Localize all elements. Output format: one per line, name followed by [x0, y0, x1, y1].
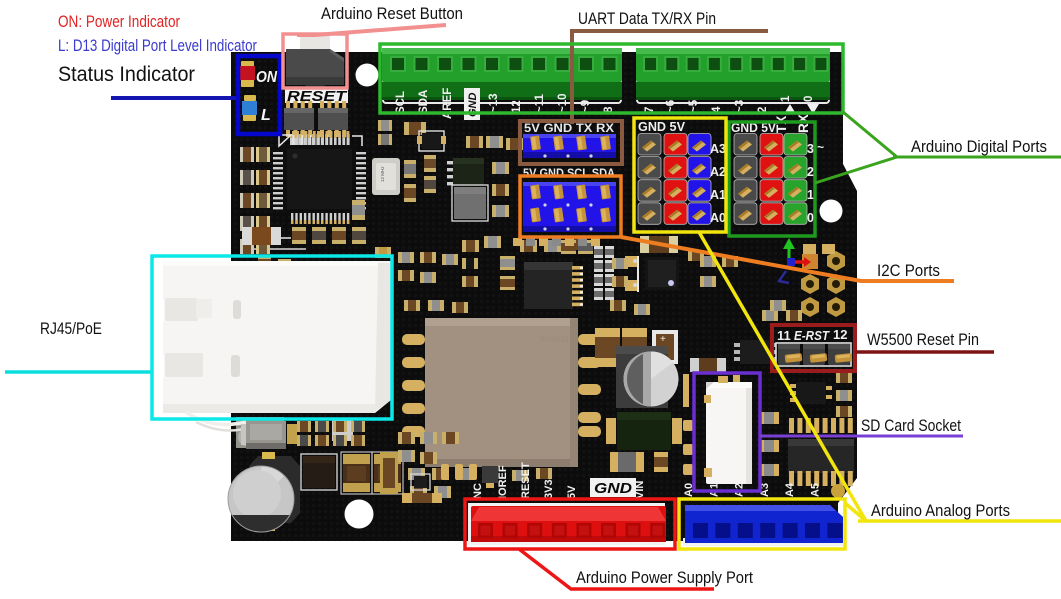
svg-text:2: 2 — [807, 165, 814, 179]
svg-text:SDA: SDA — [418, 90, 430, 114]
svg-text:IOREF: IOREF — [497, 465, 509, 499]
svg-text:NC: NC — [472, 483, 484, 499]
svg-text:E-RST: E-RST — [794, 328, 830, 343]
svg-text:GND: GND — [594, 480, 632, 497]
svg-text:0: 0 — [807, 211, 814, 225]
svg-text:L: L — [261, 107, 271, 124]
svg-text:Arduino Reset Button: Arduino Reset Button — [321, 5, 463, 23]
svg-text:W5500: W5500 — [540, 334, 569, 344]
svg-text:TX: TX — [774, 116, 789, 133]
svg-text:Arduino Power Supply Port: Arduino Power Supply Port — [576, 569, 753, 587]
svg-text:Status Indicator: Status Indicator — [58, 63, 195, 86]
svg-text:RJ45/PoE: RJ45/PoE — [40, 320, 102, 338]
svg-text:1: 1 — [780, 95, 792, 102]
svg-text:SCL: SCL — [395, 91, 407, 114]
svg-text:L: D13 Digital Port Level Indi: L: D13 Digital Port Level Indicator — [58, 37, 257, 55]
svg-text:UART Data TX/RX Pin: UART Data TX/RX Pin — [578, 10, 716, 28]
svg-text:3V3: 3V3 — [543, 479, 555, 499]
svg-text:~: ~ — [817, 140, 824, 154]
svg-text:A1: A1 — [710, 188, 726, 202]
svg-text:5V GND TX RX: 5V GND TX RX — [524, 123, 614, 135]
svg-text:Arduino Analog Ports: Arduino Analog Ports — [871, 502, 1010, 520]
svg-text:11: 11 — [777, 328, 791, 343]
svg-text:Arduino Digital Ports: Arduino Digital Ports — [911, 138, 1047, 156]
svg-text:12: 12 — [511, 100, 523, 113]
svg-text:ON: ON — [256, 69, 278, 86]
svg-text:5V: 5V — [566, 485, 578, 499]
svg-text:I2C Ports: I2C Ports — [877, 262, 940, 280]
svg-text:1: 1 — [807, 188, 814, 202]
svg-text:~5: ~5 — [688, 99, 700, 113]
svg-text:~9: ~9 — [580, 100, 592, 113]
svg-text:12 MHz: 12 MHz — [380, 166, 385, 182]
svg-text:SD Card Socket: SD Card Socket — [861, 417, 961, 435]
svg-text:5V GND SCL SDA: 5V GND SCL SDA — [523, 168, 615, 180]
svg-text:~3: ~3 — [734, 100, 746, 113]
svg-text:A0: A0 — [710, 211, 726, 225]
svg-text:~13: ~13 — [488, 93, 500, 113]
svg-text:12: 12 — [833, 327, 847, 342]
svg-text:~10: ~10 — [557, 93, 569, 113]
svg-text:A2: A2 — [710, 165, 726, 179]
svg-text:GND 5V: GND 5V — [638, 120, 686, 134]
svg-text:RESET: RESET — [520, 462, 532, 499]
svg-text:W5500 Reset Pin: W5500 Reset Pin — [867, 331, 979, 349]
svg-text:A3: A3 — [710, 142, 726, 156]
svg-text:3: 3 — [807, 142, 814, 156]
svg-text:0: 0 — [803, 96, 815, 102]
svg-text:+: + — [660, 334, 666, 345]
svg-text:A4: A4 — [784, 482, 796, 497]
svg-text:~11: ~11 — [534, 94, 546, 113]
svg-text:A5: A5 — [810, 483, 822, 497]
svg-text:~6: ~6 — [665, 100, 677, 113]
svg-text:ON: Power Indicator: ON: Power Indicator — [58, 13, 180, 31]
